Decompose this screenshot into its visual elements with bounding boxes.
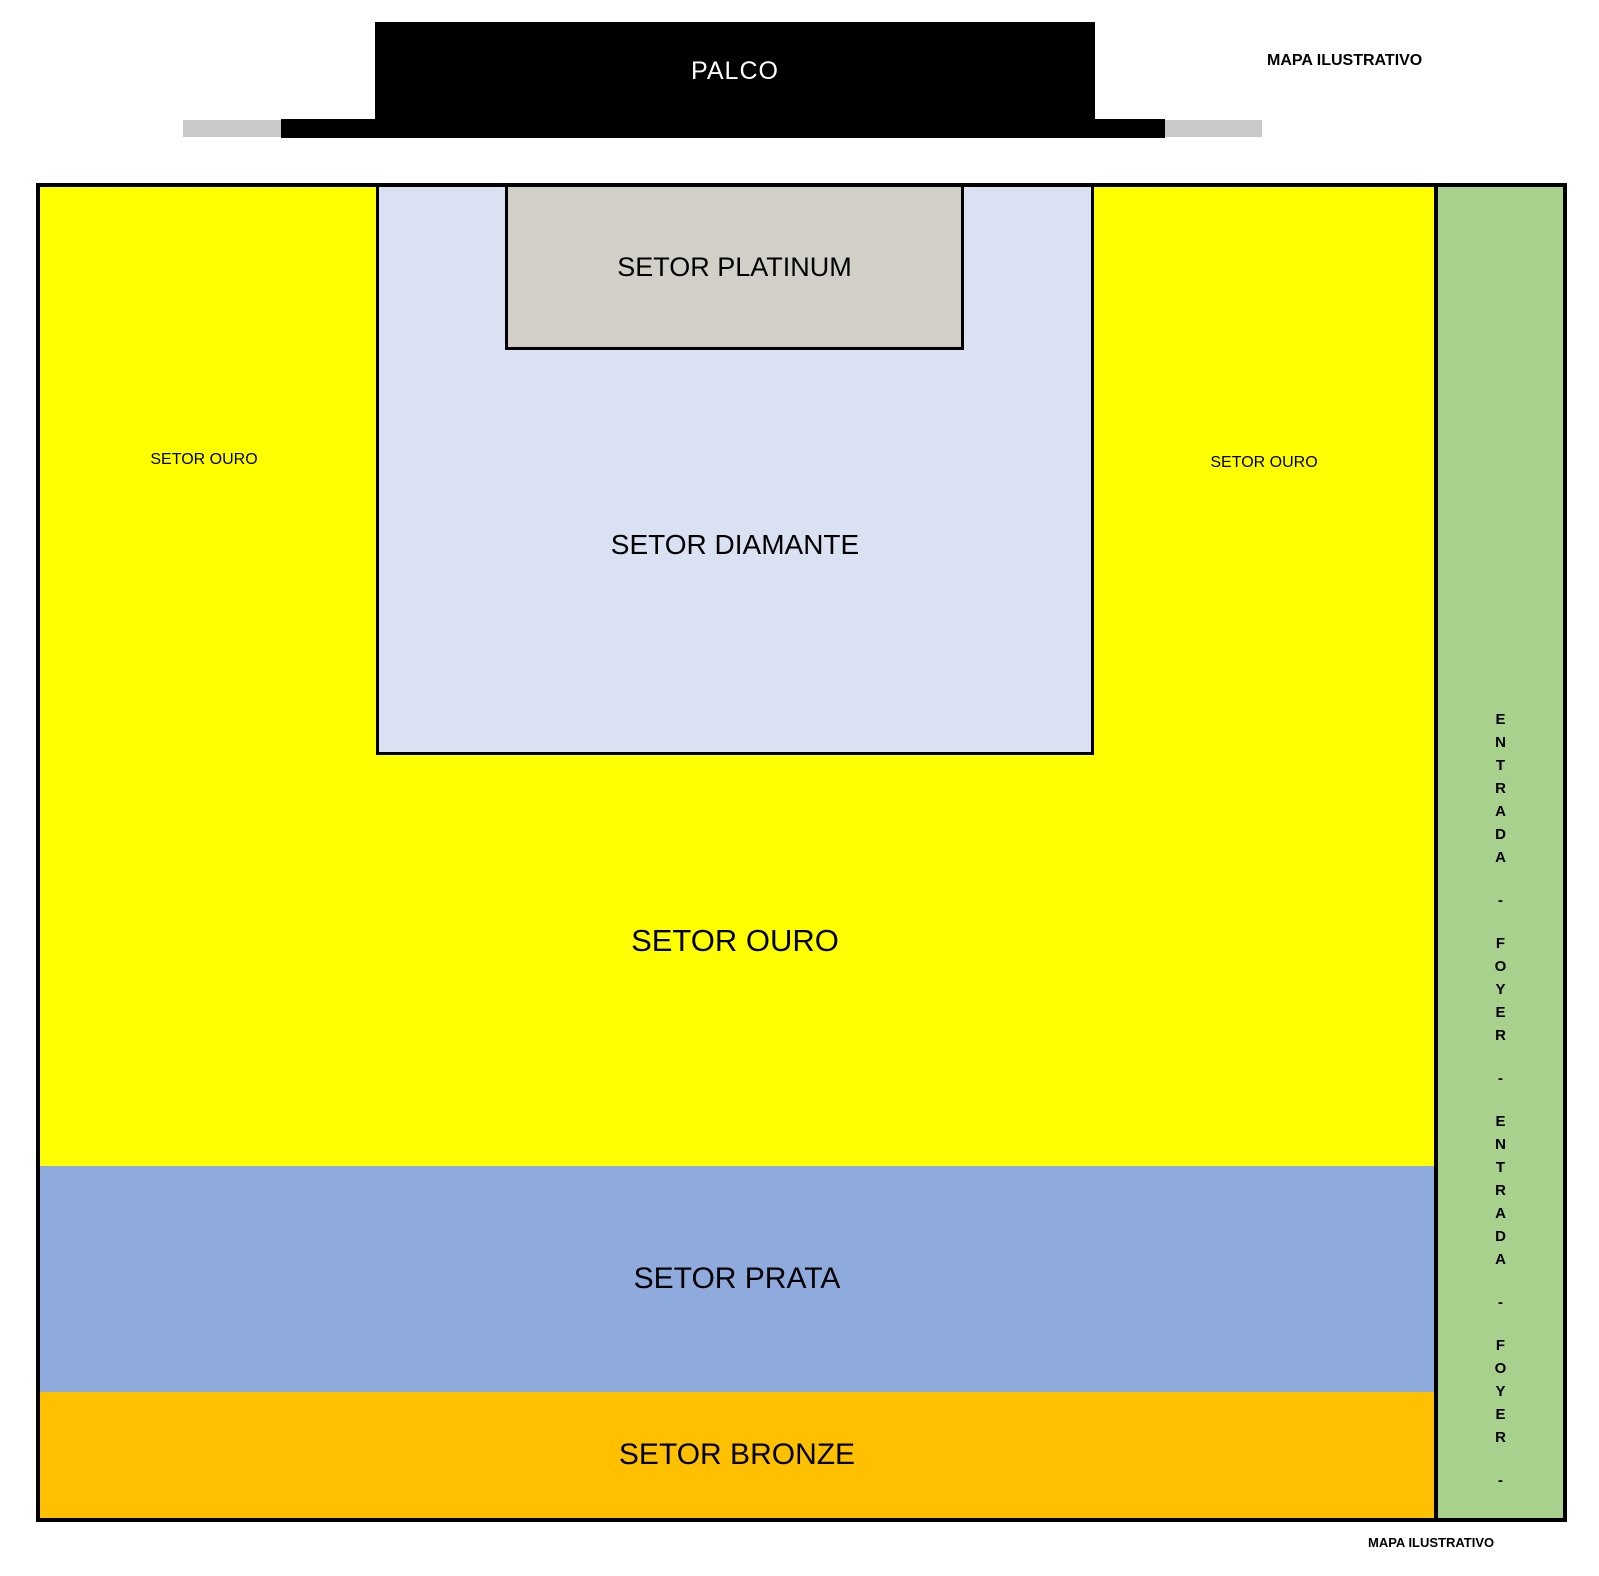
entrance-foyer-letter: E: [1495, 708, 1505, 731]
stage: PALCO: [375, 22, 1095, 120]
sector-ouro-left-label: SETOR OURO: [150, 451, 257, 469]
entrance-foyer-letter: E: [1495, 1110, 1505, 1133]
entrance-foyer-letter: D: [1495, 823, 1506, 846]
entrance-foyer-letter: E: [1495, 1001, 1505, 1024]
entrance-foyer-letter: O: [1495, 955, 1507, 978]
stage-label: PALCO: [691, 57, 779, 86]
entrance-foyer-letter: F: [1496, 932, 1505, 955]
entrance-foyer-strip: ENTRADA-FOYER-ENTRADA-FOYER-: [1434, 187, 1563, 1518]
sector-platinum: SETOR PLATINUM: [505, 187, 964, 350]
sector-ouro-main-label: SETOR OURO: [631, 923, 839, 959]
sector-prata-label: SETOR PRATA: [634, 1262, 841, 1296]
sector-bronze-label: SETOR BRONZE: [619, 1438, 855, 1472]
stage-apron-black: [281, 119, 1165, 138]
venue-map: SETOR PLATINUM SETOR DIAMANTE SETOR OURO…: [36, 183, 1567, 1522]
entrance-foyer-letter: T: [1496, 754, 1505, 777]
entrance-foyer-letter: E: [1495, 1403, 1505, 1426]
entrance-foyer-letter: A: [1495, 846, 1506, 869]
entrance-foyer-letter: -: [1498, 1469, 1503, 1492]
entrance-foyer-letter: A: [1495, 800, 1506, 823]
entrance-foyer-letter: T: [1496, 1156, 1505, 1179]
sector-platinum-label: SETOR PLATINUM: [617, 252, 852, 283]
entrance-foyer-letter: N: [1495, 731, 1506, 754]
entrance-foyer-letter: N: [1495, 1133, 1506, 1156]
entrance-foyer-letter: -: [1498, 889, 1503, 912]
watermark-bottom: MAPA ILUSTRATIVO: [1368, 1535, 1494, 1550]
entrance-foyer-letter: O: [1495, 1357, 1507, 1380]
sector-diamante-label: SETOR DIAMANTE: [611, 529, 859, 561]
sector-ouro-area: SETOR PLATINUM SETOR DIAMANTE SETOR OURO…: [40, 187, 1434, 1518]
entrance-foyer-letter: R: [1495, 777, 1506, 800]
entrance-foyer-letter: A: [1495, 1202, 1506, 1225]
entrance-foyer-letter: R: [1495, 1024, 1506, 1047]
entrance-foyer-letter: F: [1496, 1334, 1505, 1357]
entrance-foyer-letter: -: [1498, 1291, 1503, 1314]
entrance-foyer-letter: R: [1495, 1426, 1506, 1449]
entrance-foyer-letter: A: [1495, 1248, 1506, 1271]
entrance-foyer-letter: D: [1495, 1225, 1506, 1248]
entrance-foyer-letter: -: [1498, 1067, 1503, 1090]
entrance-foyer-letter: R: [1495, 1179, 1506, 1202]
sector-ouro-right-label: SETOR OURO: [1210, 454, 1317, 472]
sector-bronze: SETOR BRONZE: [40, 1392, 1434, 1518]
entrance-foyer-letter: Y: [1495, 978, 1505, 1001]
entrance-foyer-letter: Y: [1495, 1380, 1505, 1403]
watermark-top: MAPA ILUSTRATIVO: [1267, 52, 1422, 70]
sector-prata: SETOR PRATA: [40, 1166, 1434, 1392]
